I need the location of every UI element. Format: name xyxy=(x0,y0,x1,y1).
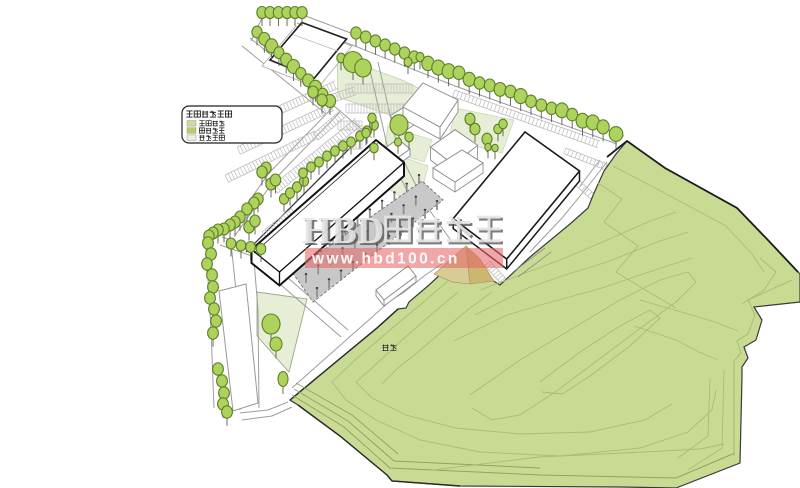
svg-text:www.hbd100.cn: www.hbd100.cn xyxy=(311,251,460,268)
svg-text:HBD: HBD xyxy=(302,210,384,252)
